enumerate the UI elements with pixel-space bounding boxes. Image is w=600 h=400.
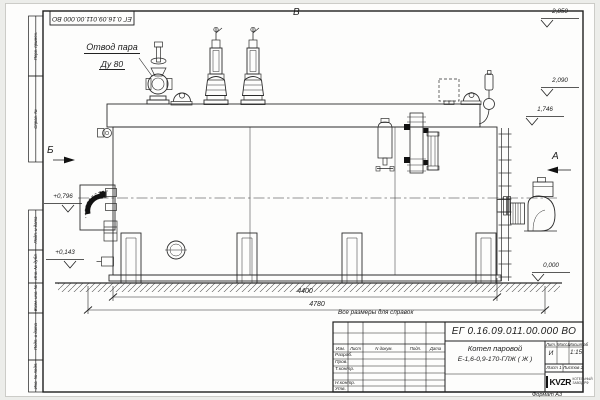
- side-stamp-podp-data-2: Подп. и дата: [30, 313, 42, 360]
- col-header-izm: Изм.: [333, 346, 348, 351]
- company-name-line2: ЗАВОД РФ: [573, 382, 593, 386]
- row-label-nkontr: Н.контр.: [335, 381, 355, 386]
- title-block-designation: ЕГ 0.16.09.011.00.000 ВО: [446, 322, 582, 341]
- sheet-label: Лист: [546, 365, 558, 370]
- elevation-ground: 0,000: [532, 263, 570, 270]
- drawing-sheet: kvzr.ru kvzr.ru kvzr.ru kvzr.ru kvzr.ru …: [0, 0, 600, 400]
- side-stamp-podp-data-1: Подп. и дата: [30, 210, 42, 250]
- view-label-right: А: [552, 152, 559, 163]
- sheets-total: 2: [581, 365, 584, 370]
- side-stamp-perv-primen: Перв. примен.: [30, 16, 42, 76]
- company-logo-text: KVZR: [550, 377, 572, 387]
- col-header-doc: N докум.: [363, 346, 405, 351]
- reference-note: Все размеры для справок: [338, 310, 413, 317]
- product-name-line2: Е-1,6-0,9-170-ГЛЖ ( Ж ): [446, 356, 544, 363]
- side-stamp-sprav-no: Справ. №: [30, 76, 42, 162]
- row-label-utv: Утв.: [335, 387, 346, 392]
- row-label-prov: Пров.: [335, 360, 348, 365]
- lit-value: И: [545, 351, 557, 358]
- row-label-razrab: Разраб.: [335, 353, 352, 358]
- col-header-list: Лист: [348, 346, 363, 351]
- side-stamp-inv-podl: Инв. № подл.: [30, 360, 42, 392]
- view-label-left: Б: [47, 146, 54, 157]
- col-header-podp: Подп.: [405, 346, 426, 351]
- sheets-cell: Листов 2: [563, 366, 583, 371]
- company-logo-cell: KVZR КОТЕЛЬНЫЙ ЗАВОД РФ: [546, 374, 582, 390]
- company-logo-icon: [546, 376, 548, 388]
- steam-outlet-line2: Ду 80: [99, 60, 125, 70]
- sheets-label: Листов: [563, 365, 579, 370]
- view-label-top: В: [293, 8, 300, 19]
- sheet-cell: Лист 1: [545, 366, 563, 371]
- side-stamp-inv-dubl: Инв. № дубл.: [30, 250, 42, 283]
- col-header-data: Дата: [426, 346, 445, 351]
- scale-value: 1:15: [569, 350, 583, 357]
- company-name: КОТЕЛЬНЫЙ ЗАВОД РФ: [573, 378, 593, 385]
- steam-outlet-line1: Отвод пара: [84, 43, 139, 54]
- scale-header: Масштаб: [568, 342, 583, 347]
- doc-number-inverted: ЕГ 0.16.09.011.00.000 ВО: [50, 11, 134, 25]
- row-label-tkontr: Т.контр.: [335, 367, 354, 372]
- elevation-right-mid: 2,090: [541, 78, 579, 85]
- side-stamp-vzam-inv: Взам. инв. №: [30, 283, 42, 313]
- dimension-overall-length: 4780: [296, 301, 338, 308]
- elevation-left-upper: +0,796: [44, 194, 82, 201]
- elevation-left-lower: +0,143: [46, 250, 84, 257]
- elevation-right-low: 1,746: [526, 107, 564, 114]
- sheet-number: 1: [559, 365, 562, 370]
- dimension-boiler-length: 4400: [285, 288, 325, 295]
- product-name-line1: Котел паровой: [446, 345, 544, 353]
- lit-header: Лит.: [545, 342, 557, 347]
- format-label: Формат А3: [512, 393, 582, 399]
- steam-outlet-callout: Отвод пара Ду 80: [82, 38, 142, 72]
- elevation-right-top: 2,850: [541, 9, 579, 16]
